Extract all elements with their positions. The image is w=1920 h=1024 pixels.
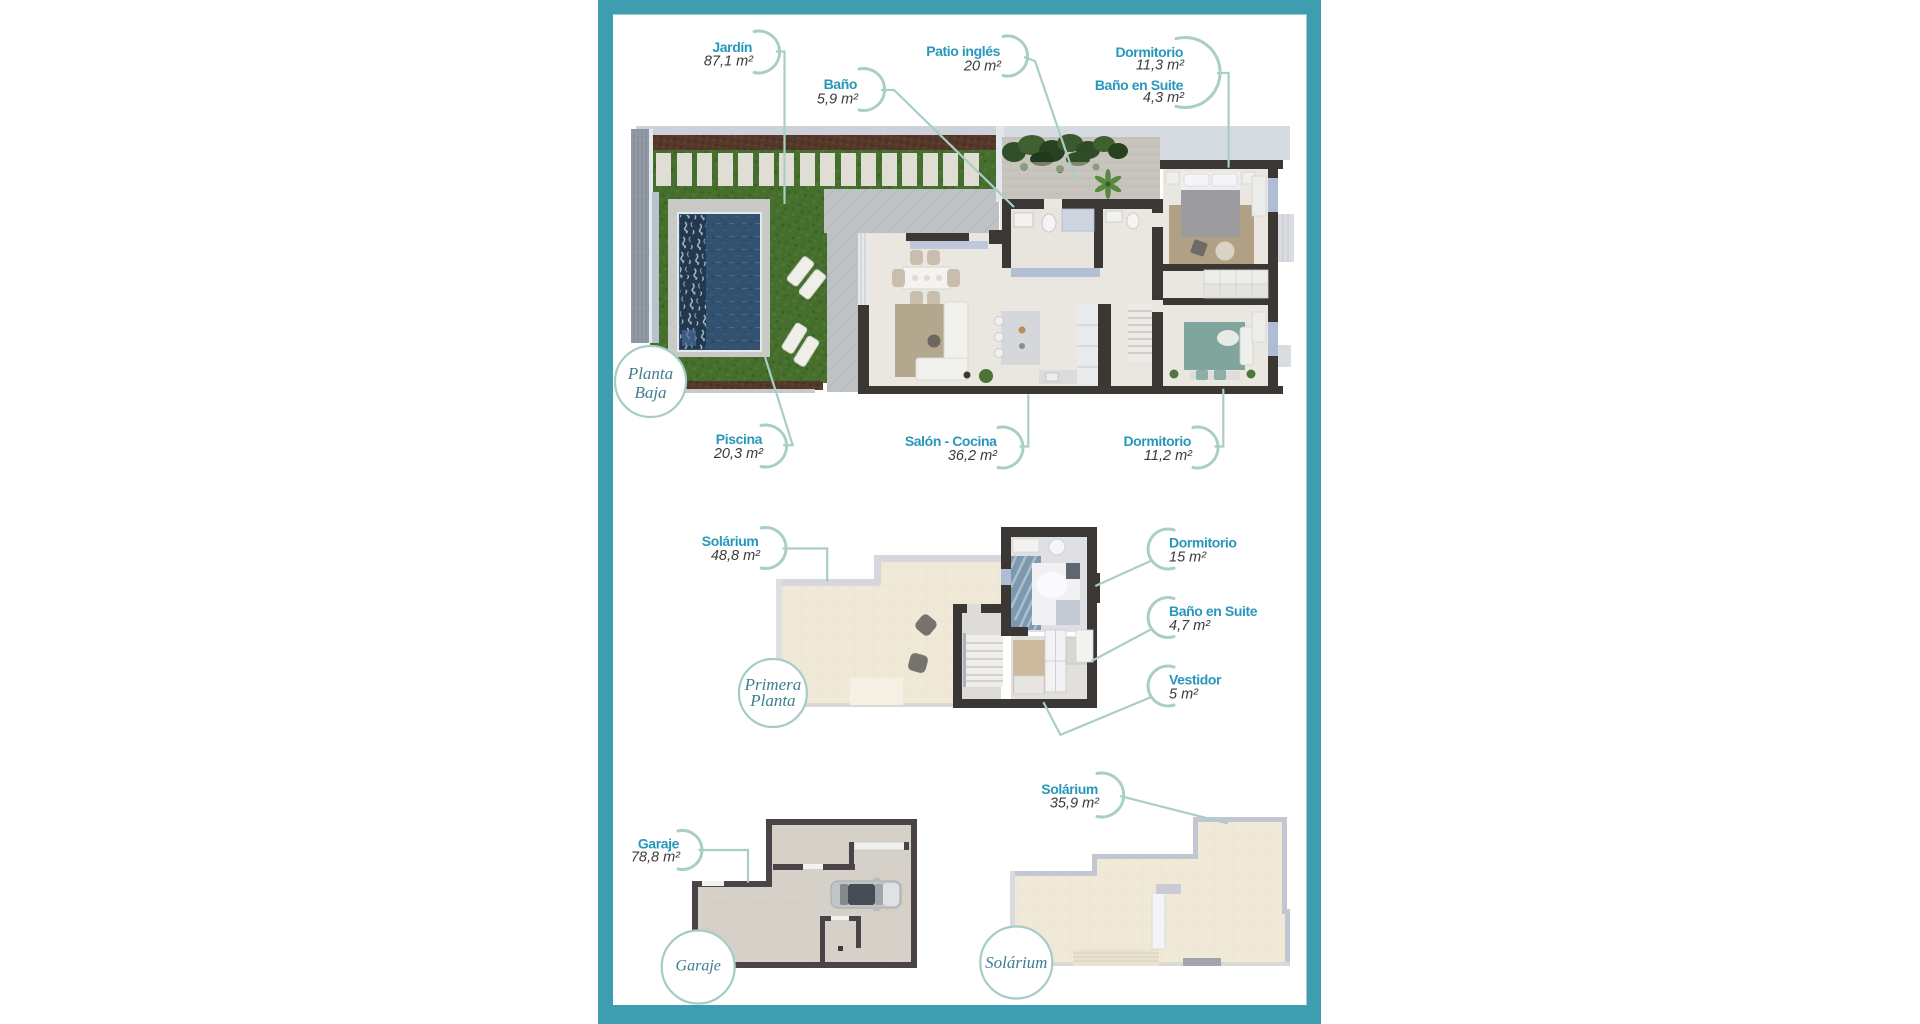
- svg-text:Piscina: Piscina: [716, 431, 763, 447]
- svg-text:Solárium: Solárium: [702, 533, 759, 549]
- svg-text:Vestidor: Vestidor: [1169, 672, 1222, 688]
- svg-text:5,9 m²: 5,9 m²: [817, 92, 859, 108]
- svg-text:20 m²: 20 m²: [963, 59, 1002, 75]
- svg-text:Baño: Baño: [824, 76, 857, 92]
- svg-text:Baja: Baja: [634, 383, 666, 402]
- svg-text:5 m²: 5 m²: [1169, 687, 1199, 703]
- svg-text:Baño en Suite: Baño en Suite: [1169, 603, 1258, 619]
- svg-text:Dormitorio: Dormitorio: [1123, 433, 1191, 449]
- svg-text:Dormitorio: Dormitorio: [1169, 535, 1237, 551]
- svg-text:Garaje: Garaje: [676, 958, 721, 975]
- svg-text:Planta: Planta: [749, 691, 795, 710]
- svg-text:11,2 m²: 11,2 m²: [1144, 448, 1193, 464]
- svg-text:20,3 m²: 20,3 m²: [713, 446, 764, 462]
- svg-text:48,8 m²: 48,8 m²: [711, 548, 761, 564]
- svg-text:Planta: Planta: [627, 364, 673, 383]
- svg-text:78,8 m²: 78,8 m²: [631, 850, 681, 866]
- svg-text:87,1 m²: 87,1 m²: [704, 54, 754, 70]
- svg-text:4,7 m²: 4,7 m²: [1169, 618, 1211, 634]
- svg-text:Solárium: Solárium: [985, 953, 1047, 972]
- svg-text:11,3 m²: 11,3 m²: [1136, 58, 1185, 74]
- svg-text:15 m²: 15 m²: [1169, 550, 1207, 566]
- svg-text:4,3 m²: 4,3 m²: [1143, 90, 1185, 106]
- svg-text:Patio inglés: Patio inglés: [926, 43, 1000, 59]
- svg-text:36,2 m²: 36,2 m²: [948, 448, 998, 464]
- svg-text:Salón - Cocina: Salón - Cocina: [905, 433, 997, 449]
- svg-text:35,9 m²: 35,9 m²: [1050, 796, 1100, 812]
